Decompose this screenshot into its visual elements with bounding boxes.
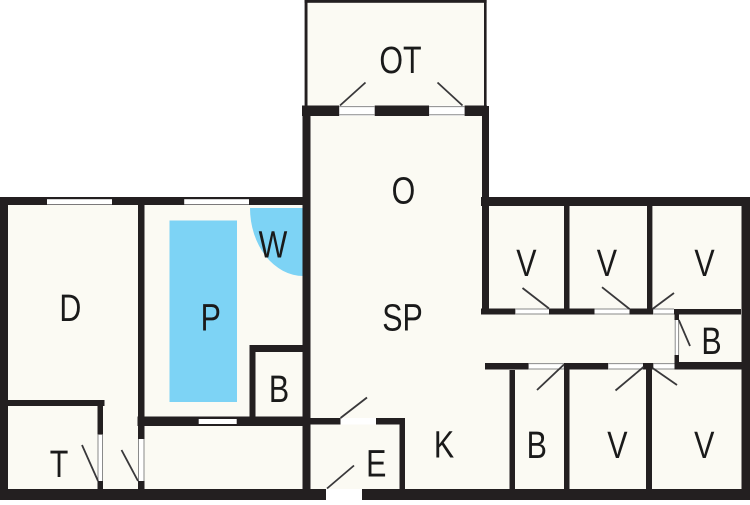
svg-text:V: V xyxy=(597,243,617,285)
svg-text:SP: SP xyxy=(382,297,423,339)
svg-text:V: V xyxy=(694,425,714,467)
svg-text:D: D xyxy=(59,288,81,330)
svg-text:B: B xyxy=(527,425,547,467)
svg-text:V: V xyxy=(607,425,627,467)
svg-text:OT: OT xyxy=(379,40,421,82)
svg-text:W: W xyxy=(259,224,288,266)
svg-text:T: T xyxy=(50,444,69,486)
svg-text:B: B xyxy=(701,321,721,363)
svg-text:V: V xyxy=(694,243,714,285)
svg-text:V: V xyxy=(516,243,536,285)
svg-text:P: P xyxy=(201,297,221,339)
svg-text:E: E xyxy=(366,443,386,485)
svg-text:B: B xyxy=(269,369,289,411)
svg-text:K: K xyxy=(434,424,454,466)
svg-text:O: O xyxy=(392,170,416,212)
